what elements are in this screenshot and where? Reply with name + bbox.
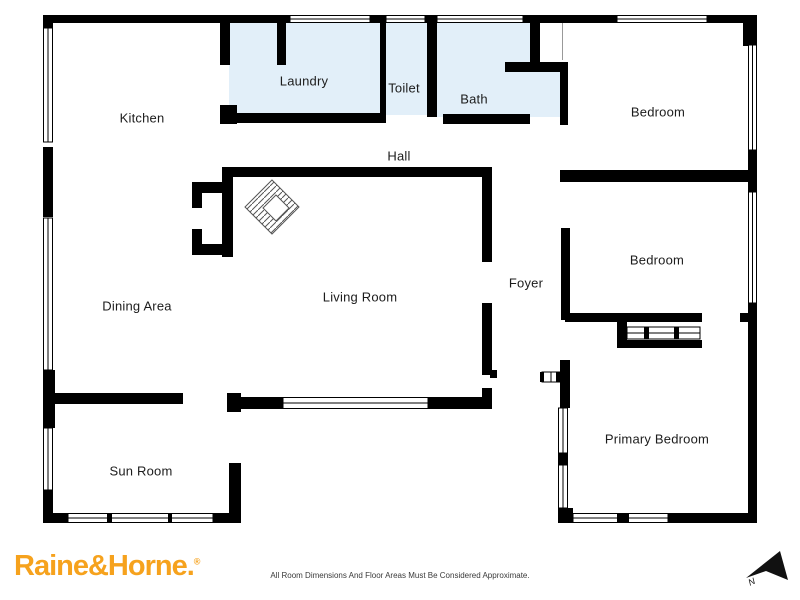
room-label-toilet: Toilet xyxy=(388,81,420,96)
room-label-primary-bedroom: Primary Bedroom xyxy=(605,432,709,447)
fireplace-hatch-symbol xyxy=(245,180,299,234)
registered-trademark-icon: ® xyxy=(194,556,201,566)
room-label-kitchen: Kitchen xyxy=(120,111,165,126)
room-label-bath: Bath xyxy=(460,92,488,107)
room-label-living-room: Living Room xyxy=(323,290,397,305)
room-label-bedroom-ne: Bedroom xyxy=(631,105,685,120)
room-label-foyer: Foyer xyxy=(509,276,543,291)
north-arrow-label: N xyxy=(747,576,758,588)
north-arrow-icon: N xyxy=(736,545,796,595)
room-label-laundry: Laundry xyxy=(280,74,328,89)
room-label-hall: Hall xyxy=(387,149,410,164)
floor-plan-page: Kitchen Laundry Toilet Bath Hall Bedroom… xyxy=(0,0,800,600)
room-label-dining-area: Dining Area xyxy=(102,299,171,314)
window-ticks xyxy=(107,327,679,523)
disclaimer-text: All Room Dimensions And Floor Areas Must… xyxy=(0,571,800,580)
room-label-sun-room: Sun Room xyxy=(109,464,172,479)
room-label-bedroom-e: Bedroom xyxy=(630,253,684,268)
